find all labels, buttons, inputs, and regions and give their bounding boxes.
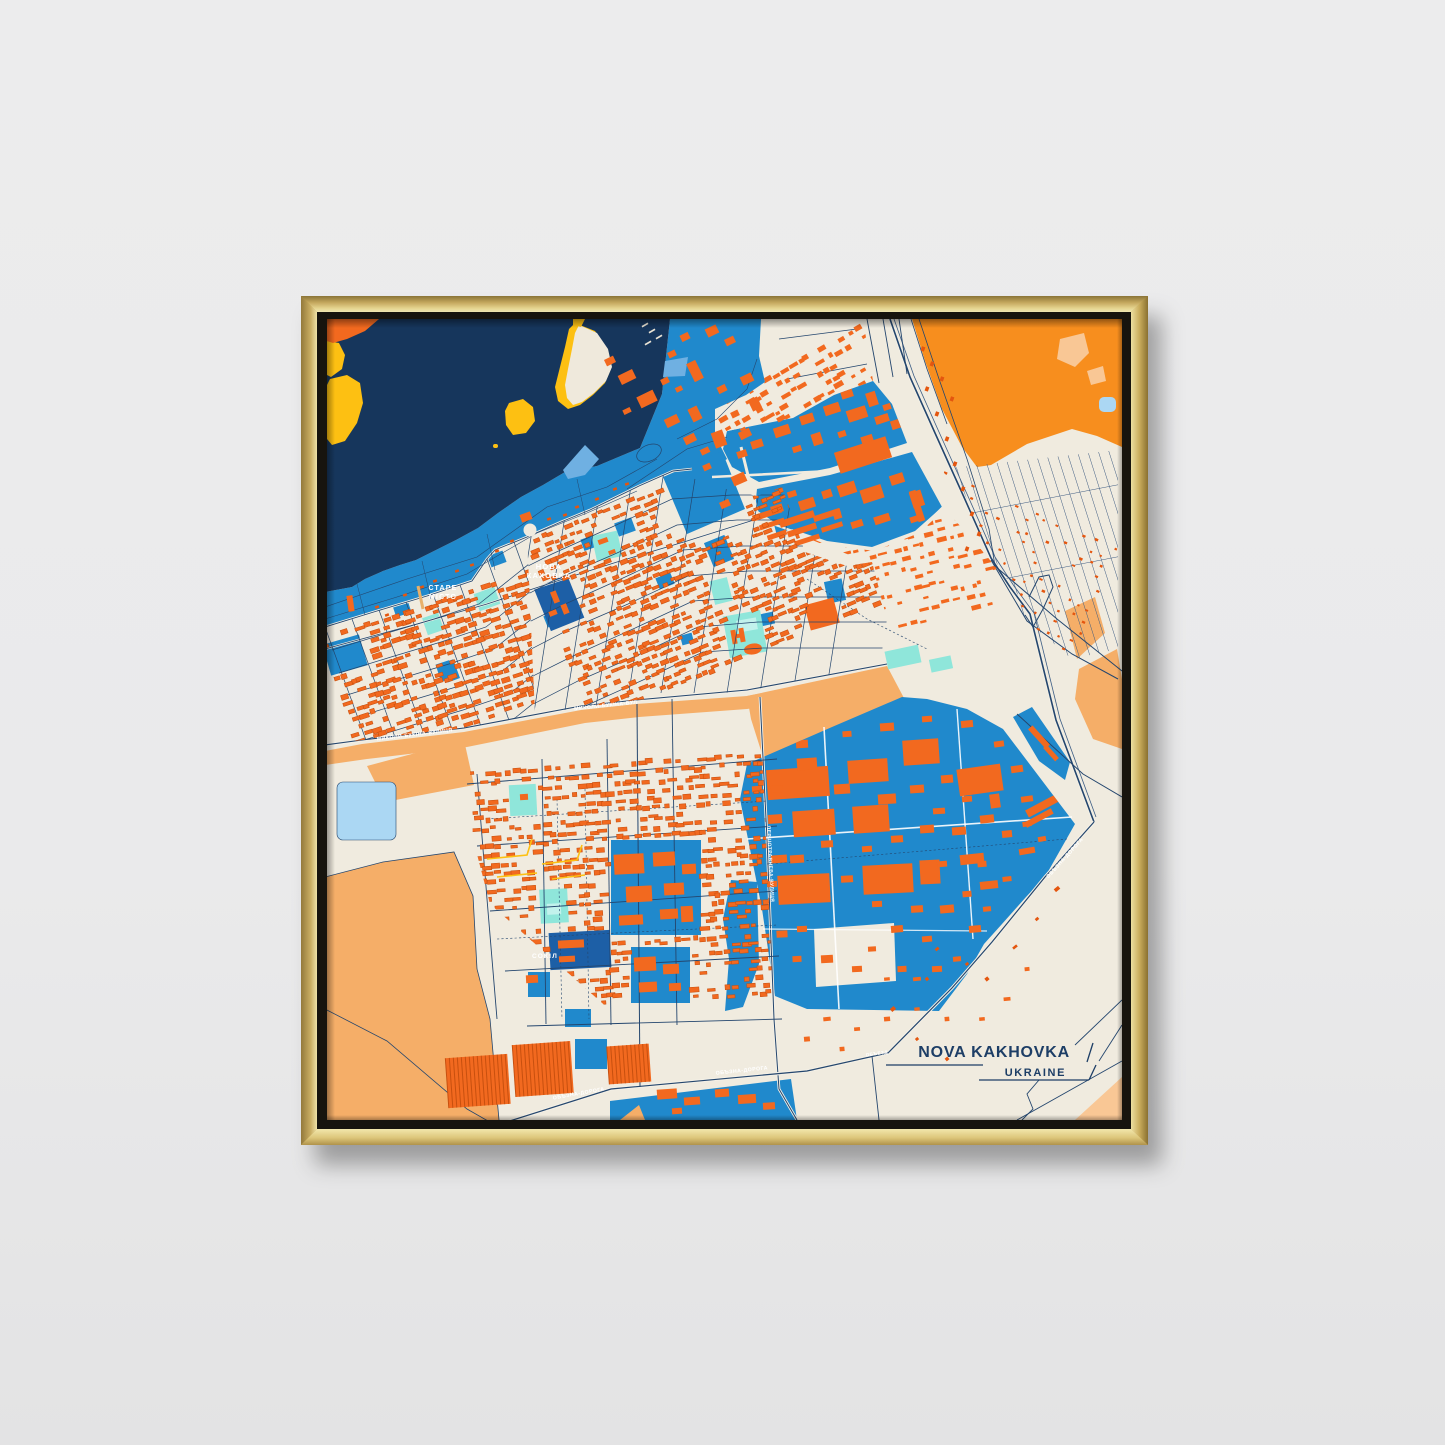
svg-text:НОВА: НОВА — [536, 562, 563, 571]
svg-text:МІСТО: МІСТО — [429, 594, 457, 601]
svg-text:СОКІЛ: СОКІЛ — [532, 953, 558, 960]
svg-text:КАХОВКА: КАХОВКА — [527, 571, 571, 580]
svg-text:NOVA KAKHOVKA: NOVA KAKHOVKA — [918, 1044, 1070, 1061]
svg-text:UKRAINE: UKRAINE — [1005, 1067, 1066, 1079]
svg-text:СТАРЕ: СТАРЕ — [428, 585, 457, 592]
